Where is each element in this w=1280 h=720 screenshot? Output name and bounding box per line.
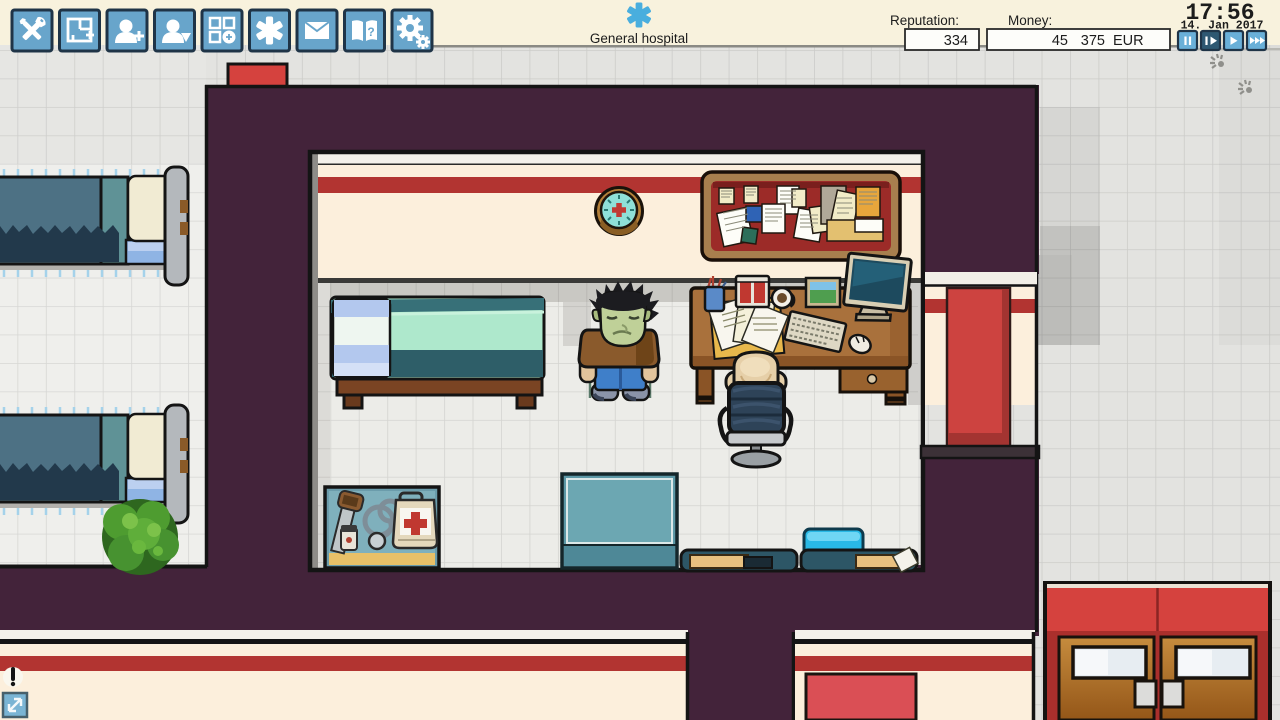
svg-text:?: ? xyxy=(367,25,374,39)
svg-text:General hospital: General hospital xyxy=(590,31,688,46)
svg-text:334: 334 xyxy=(944,33,968,49)
svg-text:Reputation:: Reputation: xyxy=(890,13,959,28)
svg-text:375: 375 xyxy=(1081,33,1105,49)
svg-text:EUR: EUR xyxy=(1113,33,1144,49)
svg-text:Money:: Money: xyxy=(1008,13,1052,28)
svg-text:45: 45 xyxy=(1052,33,1068,49)
